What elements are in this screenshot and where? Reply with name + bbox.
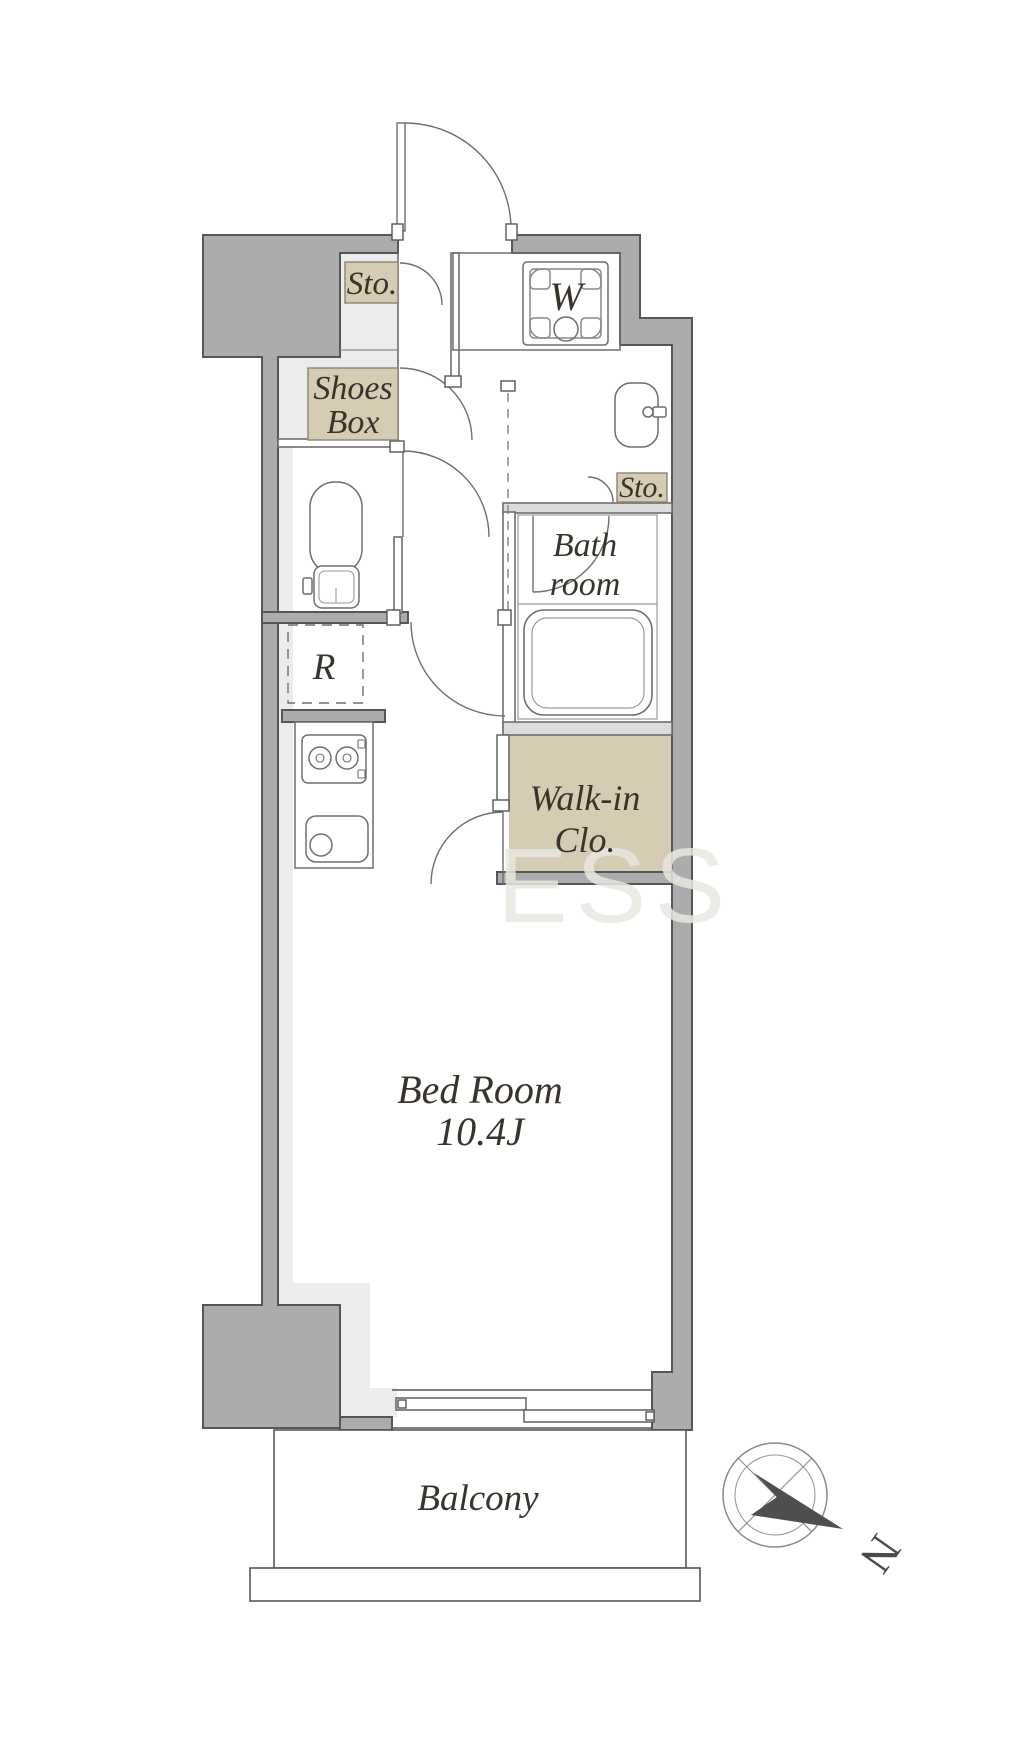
wall-toilet-east [394,537,402,613]
sliding-door-panel-left [396,1398,526,1410]
toilet-icon [303,482,362,608]
wall-toilet-south [262,612,408,623]
west-wall-lining [278,445,293,1283]
label-washing-machine: W [549,274,586,319]
balcony-slab [250,1568,700,1601]
label-walk-in-closet-1: Walk-in [530,778,641,818]
stove-knob-2 [358,770,365,778]
label-walk-in-closet-2: Clo. [554,820,615,860]
jamb-toilet [390,441,404,452]
label-bedroom-name: Bed Room [397,1067,563,1112]
floor-plan-svg: ESS Sto. Shoes Box W Sto. Bath room Walk… [0,0,1018,1757]
label-storage-entry: Sto. [347,266,397,302]
wall-walkin-west [497,735,509,806]
floor-plan: ESS Sto. Shoes Box W Sto. Bath room Walk… [0,0,1018,1757]
label-balcony: Balcony [417,1478,539,1519]
label-bedroom-size: 10.4J [436,1109,526,1154]
kitchen [295,722,373,868]
wall-kitchen-north [282,710,385,722]
jamb-hall-east [498,610,511,625]
compass: N [723,1443,911,1582]
jamb-washer-wall [445,376,461,387]
jamb-washroom-top [501,381,515,391]
sliding-door-panel-right [524,1410,654,1422]
sliding-door-tab-left [398,1400,406,1408]
compass-needle [751,1473,843,1529]
label-shoes-box-1: Shoes [313,370,392,407]
label-bathroom-2: room [550,566,621,603]
label-bathroom-1: Bath [553,527,617,564]
wall-washer-west [451,253,459,378]
toilet-flush-knob [303,578,312,594]
label-refrigerator: R [312,647,336,688]
wall-bath-south [503,722,672,735]
stove-knob-1 [358,740,365,748]
entrance-door-arc [405,123,511,229]
toilet-bowl [310,482,362,574]
compass-north-label: N [850,1526,911,1582]
jamb-walkin [493,800,509,811]
jamb-entry-left [392,224,403,240]
wall-bottom-piece [340,1417,392,1430]
sliding-door-tab-right [646,1412,654,1420]
jamb-hall-west [387,610,400,625]
kitchen-stove-icon [302,735,366,783]
label-shoes-box-2: Box [327,404,380,441]
wall-washroom-south [503,503,672,513]
jamb-entry-right [506,224,517,240]
label-storage-bath: Sto. [619,471,665,504]
entrance-door-leaf [397,123,405,231]
